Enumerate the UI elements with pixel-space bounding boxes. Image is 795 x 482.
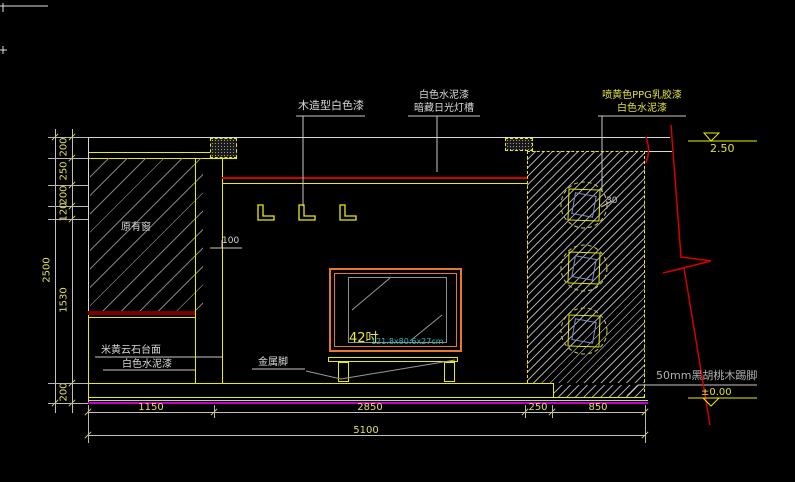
label-ppg-cement: 白色水泥漆 [594, 103, 690, 114]
dim-left-1530: 1530 [59, 287, 70, 312]
dim-ext-line [552, 405, 553, 418]
label-skirting: 50mm黑胡桃木踢脚 [656, 370, 757, 382]
label-ppg-paint: 喷黄色PPG乳胶漆 [594, 90, 690, 101]
dim-ext-line [48, 137, 88, 138]
label-wall-offset-100: 100 [222, 237, 239, 247]
dim-bottom-1150: 1150 [138, 402, 163, 413]
dim-ext-line [88, 405, 89, 443]
label-wood-panel: 木造型白色漆 [296, 100, 366, 112]
label-counter-paint: 白色水泥漆 [122, 359, 172, 370]
wall-hook-icons [258, 205, 356, 220]
dim-bottom-850: 850 [588, 402, 607, 413]
dim-ext-line [48, 185, 88, 186]
dim-left-200a: 200 [59, 137, 70, 156]
leader-lines [95, 116, 757, 396]
label-hidden-light: 暗藏日光灯槽 [404, 103, 484, 114]
level-value-ceiling: 2.50 [710, 143, 735, 155]
level-symbol-floor [688, 398, 757, 406]
dim-bottom-2850: 2850 [357, 402, 382, 413]
dim-bottom-250: 250 [528, 402, 547, 413]
dim-left-250: 250 [59, 161, 70, 180]
vector-overlay [0, 0, 795, 482]
dim-ext-line [645, 405, 646, 443]
dim-ext-line [48, 383, 88, 384]
dim-ext-line [525, 405, 526, 418]
label-niche-depth-30: 30 [606, 197, 617, 207]
level-symbol-ceiling [688, 133, 757, 141]
cad-drawing-canvas: 木造型白色漆 白色水泥漆 暗藏日光灯槽 喷黄色PPG乳胶漆 白色水泥漆 原有窗 … [0, 0, 795, 482]
dim-ext-line [48, 403, 88, 404]
dim-ext-line [48, 158, 88, 159]
niche-decorations [561, 182, 607, 354]
label-tv-spec: 121.8x80.6x27cm [371, 338, 444, 347]
reflection-lines [306, 278, 455, 379]
dim-ext-line [48, 206, 88, 207]
label-marble-counter: 米黄云石台面 [101, 345, 161, 356]
dim-ext-line [214, 405, 215, 418]
level-value-floor: ±0.00 [701, 387, 732, 398]
dim-ext-line [48, 219, 88, 220]
label-original-window: 原有窗 [121, 222, 151, 233]
label-metal-feet: 金属脚 [258, 357, 288, 368]
dim-left-total-2500: 2500 [42, 257, 53, 282]
dim-bottom-total-5100: 5100 [353, 425, 378, 436]
label-cement-paint-1: 白色水泥漆 [404, 90, 484, 101]
screen-artifact-marks [0, 3, 48, 54]
